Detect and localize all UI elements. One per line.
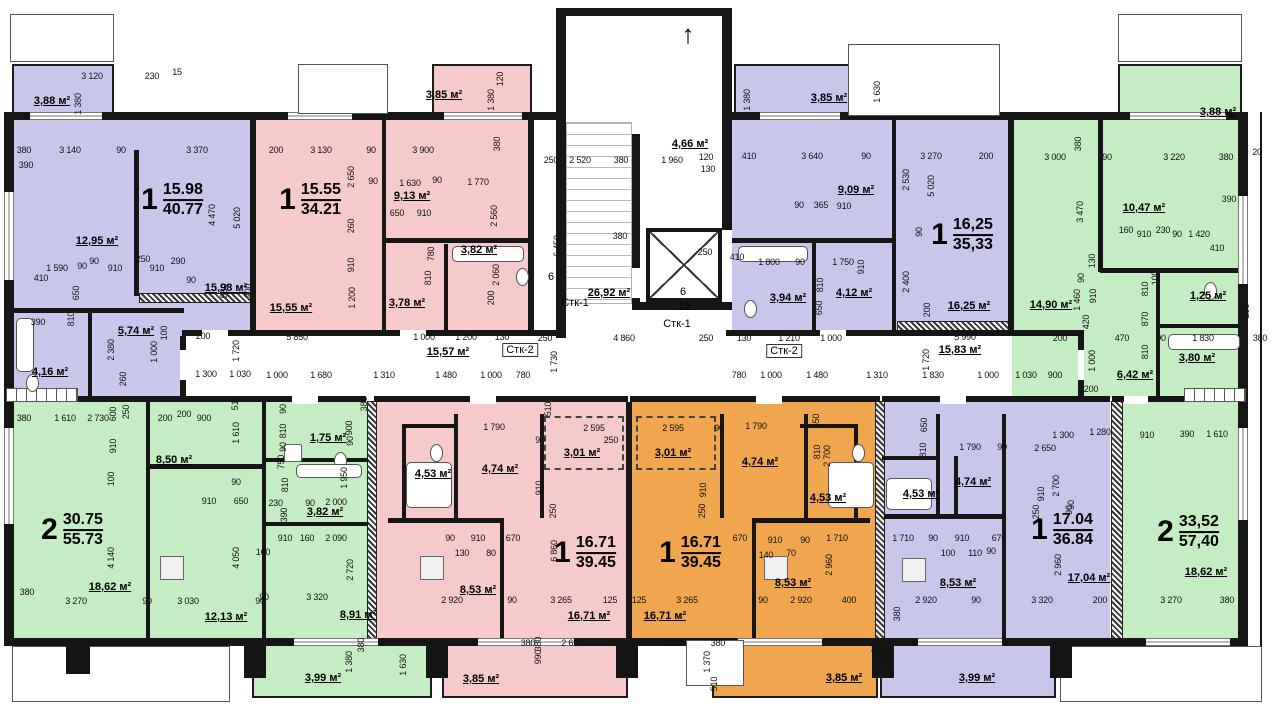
dimension-label: 1 310 (373, 370, 395, 380)
dimension-label: 2 090 (325, 533, 347, 543)
dimension-label: 90 (997, 442, 1007, 452)
dimension-label: 260 (346, 219, 356, 233)
wall (882, 456, 940, 460)
dimension-label: 810 (815, 278, 825, 292)
dimension-label: 3 270 (65, 596, 87, 606)
room-area-label: 3,94 м² (770, 292, 806, 304)
dimension-label: 810 (1140, 282, 1150, 296)
dimension-label: 200 (1053, 333, 1067, 343)
room-area-label: 3,85 м² (426, 89, 462, 101)
dimension-label: 380 (20, 587, 34, 597)
apartment-area-fraction: 33,5257,40 (1179, 513, 1219, 551)
dimension-label: 250 (699, 333, 713, 343)
dimension-label: 990 (533, 650, 543, 664)
dimension-label: 4 470 (207, 204, 217, 226)
dimension-label: 90 (366, 145, 376, 155)
toilet-fixture (516, 268, 529, 286)
dimension-label: 1 770 (467, 177, 489, 187)
dimension-label: 1 790 (745, 421, 767, 431)
room-area-label: 4,53 м² (903, 488, 939, 500)
dimension-label: 90 (77, 261, 87, 271)
dimension-label: 1 720 (231, 340, 241, 362)
dimension-label: 140 (759, 550, 773, 560)
dimension-label: 200 (922, 303, 932, 317)
dimension-label: 5 990 (954, 332, 976, 342)
dimension-label: 2 695 (663, 638, 685, 648)
wall (804, 414, 808, 518)
dimension-label: 90 (914, 227, 924, 237)
north-arrow: ↑ (682, 21, 695, 47)
dimension-label: 160 (256, 547, 270, 557)
dimension-label: 100 (941, 548, 955, 558)
dimension-label: 90 (714, 423, 724, 433)
dimension-label: 910 (1140, 430, 1154, 440)
dimension-label: 90 (1156, 333, 1166, 343)
dimension-label: 1 280 (1089, 427, 1111, 437)
dimension-label: 1 380 (742, 89, 752, 111)
room-area-label: 3,88 м² (34, 95, 70, 107)
open-structure-outline (1060, 646, 1262, 702)
dimension-label: 1 380 (486, 89, 496, 111)
dimension-label: 1 830 (922, 370, 944, 380)
open-structure-outline (10, 14, 114, 62)
apartment-area-fraction: 30.7555.73 (63, 511, 103, 549)
room-area-label: 3,99 м² (305, 672, 341, 684)
room-area-label: 6,42 м² (1117, 369, 1153, 381)
wall (936, 414, 940, 516)
dimension-label: 3 470 (1075, 201, 1085, 223)
dimension-label: 510 (709, 677, 719, 691)
dimension-label: 1 030 (1015, 370, 1037, 380)
dimension-label: 870 (1140, 312, 1150, 326)
wall (444, 244, 448, 332)
dimension-label: 90 (231, 477, 241, 487)
dimension-label: 380 (613, 231, 627, 241)
apartment-label: 116.7139.45 (659, 534, 721, 572)
dimension-label: 3 220 (1163, 152, 1185, 162)
hatched-wall (368, 402, 376, 640)
wall (752, 518, 756, 640)
dimension-label: 910 (108, 263, 122, 273)
apartment-room-count: 2 (41, 515, 58, 545)
dimension-label: 3 320 (1031, 595, 1053, 605)
riser-label: Стк-2 (766, 344, 802, 358)
pier-column (1050, 640, 1072, 678)
dimension-label: 1 000 (266, 370, 288, 380)
room-area-label: 8,53 м² (940, 577, 976, 589)
room-area-label: 3,85 м² (826, 672, 862, 684)
apartment-area-fraction: 15.5534.21 (301, 181, 341, 219)
dimension-label: 650 (811, 414, 821, 428)
wall (1008, 118, 1014, 336)
dimension-label: 1 300 (1052, 430, 1074, 440)
wall (892, 118, 896, 336)
dimension-label: 4 860 (613, 333, 635, 343)
dimension-label: 1 710 (826, 533, 848, 543)
room-area-label: 3,88 м² (1200, 106, 1236, 118)
dimension-label: 2 380 (106, 339, 116, 361)
dimension-label: 600 (108, 407, 118, 421)
dimension-label: 910 (417, 208, 431, 218)
dimension-label: 810 (1140, 345, 1150, 359)
dimension-label: 90 (794, 200, 804, 210)
wall (556, 8, 732, 16)
tub-fixture (296, 464, 362, 478)
dimension-label: 130 (701, 164, 715, 174)
balcony-bottom-purple (880, 642, 1056, 698)
dimension-label: 470 (1115, 333, 1129, 343)
dimension-label: 390 (19, 160, 33, 170)
apartment-total-area: 35,33 (953, 236, 993, 254)
dimension-label: 380 (521, 638, 535, 648)
wall (388, 518, 502, 523)
dimension-label: 2 730 (87, 413, 109, 423)
window (918, 638, 1002, 646)
dimension-label: 1 200 (455, 332, 477, 342)
room-area-label: 12,95 м² (76, 235, 118, 247)
apartment-living-area: 15.55 (301, 181, 341, 201)
apartment-room-count: 2 (1157, 517, 1174, 547)
dimension-label: 6 450 (552, 235, 562, 257)
dimension-label: 910 (856, 260, 866, 274)
dimension-label: 100 (1150, 271, 1160, 285)
apartment-1-room-topleft (14, 118, 252, 336)
wall (1238, 112, 1248, 646)
dimension-label: 1 460 (1072, 289, 1082, 311)
wall (14, 308, 184, 313)
door-opening (180, 350, 186, 380)
apartment-area-fraction: 17.0436.84 (1053, 511, 1093, 549)
door-opening (1078, 350, 1084, 380)
dimension-label: 650 (234, 496, 248, 506)
dimension-label: 100 (106, 472, 116, 486)
dimension-label: 1 610 (231, 422, 241, 444)
dimension-label: 110 (968, 548, 982, 558)
dimension-label: 200 (269, 145, 283, 155)
dimension-label: 1 310 (866, 370, 888, 380)
room-area-label: 4,12 м² (836, 287, 872, 299)
room-area-label: 9,09 м² (838, 184, 874, 196)
wall (266, 522, 368, 526)
dimension-label: 200 (1084, 384, 1098, 394)
open-structure-outline (1118, 14, 1242, 62)
wall (374, 396, 628, 402)
dimension-label: 390 (31, 317, 45, 327)
dimension-label: 250 (604, 435, 618, 445)
wall (1100, 268, 1242, 273)
wall (800, 424, 858, 428)
dimension-label: 80 (486, 548, 496, 558)
dimension-label: 410 (34, 273, 48, 283)
dimension-label: 250 (121, 405, 131, 419)
dimension-label: 230 (1156, 225, 1170, 235)
dimension-label: 1 380 (881, 651, 891, 673)
dimension-label: 1 030 (229, 369, 251, 379)
dimension-label: 130 (737, 333, 751, 343)
dimension-label: 910 (346, 258, 356, 272)
dimension-label: 2 920 (915, 595, 937, 605)
dimension-label: 380 (492, 137, 502, 151)
wall (722, 112, 732, 230)
wall (250, 118, 256, 336)
dimension-label: 90 (368, 176, 378, 186)
dimension-label: 780 (426, 247, 436, 261)
window (738, 638, 822, 646)
wall (722, 8, 732, 120)
dimension-label: 380 (892, 607, 902, 621)
wall (382, 118, 386, 242)
room-area-label: 8,91 м² (340, 609, 376, 621)
riser-label: 6 (548, 271, 554, 283)
dimension-label: 365 (814, 200, 828, 210)
dimension-label: 380 (1253, 333, 1267, 343)
dimension-label: 390 (279, 508, 289, 522)
apartment-total-area: 57,40 (1179, 533, 1219, 551)
wall (556, 8, 566, 120)
dimension-label: 125 (603, 595, 617, 605)
window (4, 428, 14, 524)
dimension-label: 910 (1137, 229, 1151, 239)
room-area-label: 3,82 м² (461, 244, 497, 256)
dimension-label: 2 920 (790, 595, 812, 605)
dimension-label: 810 (423, 271, 433, 285)
apartment-label: 117.0436.84 (1031, 511, 1093, 549)
dimension-label: 2 960 (1053, 554, 1063, 576)
apartment-room-count: 1 (554, 538, 571, 568)
room-area-label: 16,71 м² (568, 610, 610, 622)
dimension-label: 200 (1093, 595, 1107, 605)
room-area-label: 4,66 м² (672, 138, 708, 150)
apartment-label: 115.9840.77 (141, 181, 203, 219)
dimension-label: 380 (359, 397, 369, 411)
dimension-label: 390 (1180, 429, 1194, 439)
dimension-label: 1 000 (977, 370, 999, 380)
open-structure-outline (848, 44, 1000, 116)
dimension-label: 900 (1048, 370, 1062, 380)
dimension-label: 380 (17, 145, 31, 155)
dimension-label: 230 (145, 71, 159, 81)
dimension-label: 90 (259, 592, 269, 602)
door-opening (470, 396, 496, 404)
dimension-label: 200 (979, 151, 993, 161)
dimension-label: 380 (1073, 137, 1083, 151)
dimension-label: 90 (1076, 273, 1086, 283)
door-opening (940, 396, 966, 404)
riser-label: Стк-1 (663, 318, 691, 330)
apartment-label: 230.7555.73 (41, 511, 103, 549)
hatched-wall (876, 402, 884, 640)
dimension-label: 250 (548, 504, 558, 518)
room-area-label: 4,74 м² (742, 456, 778, 468)
toilet-fixture (852, 444, 865, 462)
apartment-total-area: 34.21 (301, 201, 341, 219)
room-area-label: 16,25 м² (948, 300, 990, 312)
dimension-label: 90 (89, 256, 99, 266)
room-area-label: 15,55 м² (270, 302, 312, 314)
dimension-label: 910 (1088, 289, 1098, 303)
dimension-label: 900 (197, 413, 211, 423)
apartment-area-fraction: 16.7139.45 (576, 534, 616, 572)
apartment-total-area: 39.45 (576, 554, 616, 572)
dimension-label: 3 265 (676, 595, 698, 605)
dimension-label: 1 300 (195, 369, 217, 379)
dimension-label: 380 (614, 155, 628, 165)
room-area-label: 9,13 м² (394, 190, 430, 202)
apartment-room-count: 1 (1031, 515, 1048, 545)
room-area-label: 3,85 м² (463, 673, 499, 685)
dimension-label: 20 (1252, 147, 1262, 157)
apartment-living-area: 33,52 (1179, 513, 1219, 533)
glazing-strip (1184, 388, 1246, 402)
dimension-label: 4 050 (231, 547, 241, 569)
dimension-label: 90 (971, 595, 981, 605)
apartment-room-count: 1 (659, 538, 676, 568)
dimension-label: 2 400 (901, 271, 911, 293)
window (444, 112, 522, 120)
dimension-label: 200 (158, 413, 172, 423)
stove-fixture (420, 556, 444, 580)
dimension-label: 650 (71, 286, 81, 300)
dimension-label: 250 (605, 638, 619, 648)
room-area-label: 3,82 м² (307, 506, 343, 518)
dimension-label: 650 (814, 301, 824, 315)
room-area-label: 14,90 м² (1030, 299, 1072, 311)
toilet-fixture (744, 300, 757, 318)
dimension-label: 810 (278, 424, 288, 438)
dimension-label: 2 560 (489, 205, 499, 227)
room-area-label: 8,53 м² (775, 577, 811, 589)
dimension-label: 250 (538, 333, 552, 343)
dimension-label: 810 (66, 312, 76, 326)
stove-fixture (902, 558, 926, 582)
apartment-area-fraction: 15.9840.77 (163, 181, 203, 219)
dimension-label: 90 (186, 275, 196, 285)
dimension-label: 1 960 (661, 155, 683, 165)
room-area-label: 18,62 м² (89, 581, 131, 593)
dimension-label: 90 (928, 533, 938, 543)
dimension-label: 90 (142, 596, 152, 606)
wall (454, 414, 458, 518)
dimension-label: 1 680 (310, 370, 332, 380)
balcony-top-purple (734, 64, 856, 116)
dimension-label: 780 (732, 370, 746, 380)
dimension-label: 910 (150, 263, 164, 273)
apartment-living-area: 30.75 (63, 511, 103, 531)
dimension-label: 1 950 (339, 467, 349, 489)
dimension-label: 3 270 (920, 151, 942, 161)
dimension-label: 90 (758, 595, 768, 605)
room-area-label: 3,01 м² (564, 447, 600, 459)
dimension-label: 200 (177, 409, 191, 419)
dimension-label: 5 020 (926, 175, 936, 197)
dimension-label: 200 (196, 331, 210, 341)
dimension-label: 1 710 (892, 533, 914, 543)
apartment-area-fraction: 16,2535,33 (953, 216, 993, 254)
dimension-label: 90 (535, 435, 545, 445)
apartment-label: 116.7139.45 (554, 534, 616, 572)
dimension-label: 1 830 (1192, 333, 1214, 343)
dimension-label: 2 520 (569, 155, 591, 165)
wall (88, 310, 92, 398)
dimension-label: 510 (543, 402, 553, 416)
dimension-label: 1 610 (54, 413, 76, 423)
window (760, 112, 840, 120)
dimension-label: 2 650 (346, 166, 356, 188)
room-area-label: 3,01 м² (655, 447, 691, 459)
apartment-label: 233,5257,40 (1157, 513, 1219, 551)
dimension-label: 260 (118, 372, 128, 386)
dimension-label: 90 (345, 436, 355, 446)
room-area-label: 3,85 м² (811, 92, 847, 104)
apartment-label: 116,2535,33 (931, 216, 993, 254)
apartment-area-fraction: 16.7139.45 (681, 534, 721, 572)
dimension-label: 1 480 (806, 370, 828, 380)
dimension-label: 200 (486, 291, 496, 305)
pier-column (66, 640, 90, 674)
window (4, 192, 14, 280)
dimension-label: 670 (506, 533, 520, 543)
wall (1098, 118, 1103, 272)
floor-plan: 3 120230151 3803803 140903 3703904 4705 … (0, 0, 1280, 720)
dimension-label: 125 (632, 595, 646, 605)
dimension-label: 3 640 (801, 151, 823, 161)
room-area-label: 8,53 м² (460, 584, 496, 596)
dimension-label: 910 (108, 439, 118, 453)
dimension-label: 1 230 (261, 498, 283, 508)
dimension-label: 90 (795, 257, 805, 267)
dimension-label: 1 000 (413, 332, 435, 342)
dimension-label: 70 (786, 548, 796, 558)
dimension-label: 780 (516, 370, 530, 380)
door-opening (292, 396, 318, 404)
dimension-label: 90 (445, 533, 455, 543)
dimension-label: 3 000 (1044, 152, 1066, 162)
dimension-label: 1 750 (832, 257, 854, 267)
dimension-label: 910 (278, 533, 292, 543)
room-area-label: 8,50 м² (156, 454, 192, 466)
dimension-label: 1 630 (399, 178, 421, 188)
dimension-label: 90 (986, 546, 996, 556)
dimension-label: 3 320 (306, 592, 328, 602)
dimension-label: 650 (919, 418, 929, 432)
hatched-wall (1112, 402, 1122, 640)
dimension-label: 380 (711, 638, 725, 648)
pier-column (616, 640, 638, 678)
riser-label: 6 (680, 286, 686, 298)
dimension-label: 290 (1241, 304, 1251, 318)
wall (756, 518, 870, 523)
dimension-label: 90 (278, 404, 288, 414)
dimension-label: 2 700 (1051, 475, 1061, 497)
dimension-label: 160 (300, 533, 314, 543)
dimension-label: 130 (455, 548, 469, 558)
dimension-label: 3 900 (412, 145, 434, 155)
wall (382, 242, 386, 334)
apartment-room-count: 1 (279, 185, 296, 215)
dimension-label: 1 630 (398, 654, 408, 676)
dimension-label: 670 (733, 533, 747, 543)
window (1146, 638, 1230, 646)
dimension-label: 90 (1066, 500, 1076, 510)
dimension-label: 2 530 (901, 169, 911, 191)
dimension-label: 130 (495, 332, 509, 342)
dimension-label: 2 960 (824, 554, 834, 576)
dimension-label: 5 850 (286, 332, 308, 342)
dimension-label: 90 (861, 151, 871, 161)
room-area-label: 3,99 м² (959, 672, 995, 684)
dimension-label: 3 030 (177, 596, 199, 606)
dimension-label: 250 (136, 254, 150, 264)
